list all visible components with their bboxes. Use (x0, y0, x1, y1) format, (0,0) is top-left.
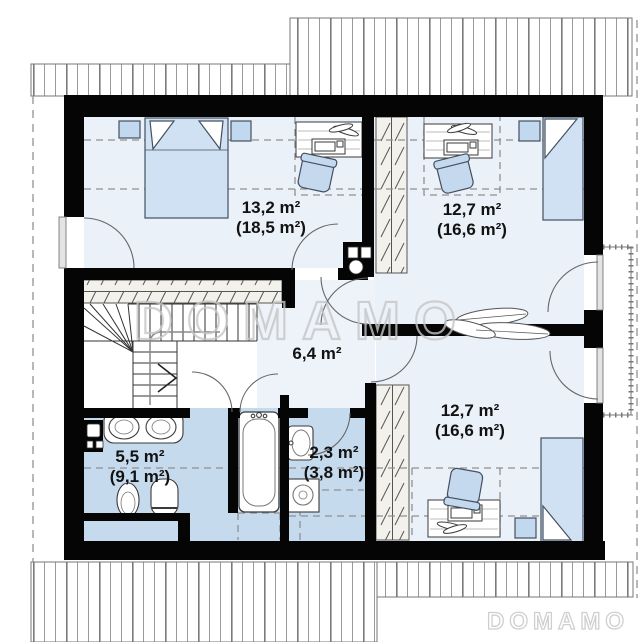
room-total-area: (16,6 m²) (437, 220, 507, 240)
room-area: 12,7 m² (435, 401, 505, 421)
single-bed (543, 117, 583, 220)
room-area: 12,7 m² (437, 200, 507, 220)
room-total-area: (9,1 m²) (110, 467, 170, 487)
room-area: 6,4 m² (292, 344, 341, 364)
washing-machine (288, 479, 319, 512)
single-bed (541, 438, 583, 542)
balcony-door-top (597, 255, 603, 310)
window-left (59, 217, 66, 268)
toilet (117, 483, 139, 517)
room-label-bedroom-top-right: 12,7 m² (16,6 m²) (437, 200, 507, 240)
bathtub (239, 412, 279, 512)
room-label-wc: 2,3 m² (3,8 m²) (304, 443, 364, 483)
room-area: 2,3 m² (304, 443, 364, 463)
nightstand (519, 121, 540, 141)
room-area: 13,2 m² (236, 198, 306, 218)
room-label-bedroom-top-left: 13,2 m² (18,5 m²) (236, 198, 306, 238)
room-total-area: (3,8 m²) (304, 463, 364, 483)
desk (296, 122, 362, 157)
nightstand (515, 518, 536, 538)
room-label-hall: 6,4 m² (292, 344, 341, 364)
nightstand (119, 121, 140, 138)
balcony-door-bottom (597, 348, 603, 403)
nightstand (231, 121, 251, 141)
room-total-area: (18,5 m²) (236, 218, 306, 238)
room-area: 5,5 m² (110, 447, 170, 467)
room-total-area: (16,6 m²) (435, 421, 505, 441)
floor-plan-drawing (0, 0, 640, 642)
desk (424, 121, 492, 158)
double-bed (145, 118, 228, 218)
room-label-bedroom-bottom-right: 12,7 m² (16,6 m²) (435, 401, 505, 441)
room-label-bathroom: 5,5 m² (9,1 m²) (110, 447, 170, 487)
floor-plan: 13,2 m² (18,5 m²) 12,7 m² (16,6 m²) 6,4 … (0, 0, 640, 642)
